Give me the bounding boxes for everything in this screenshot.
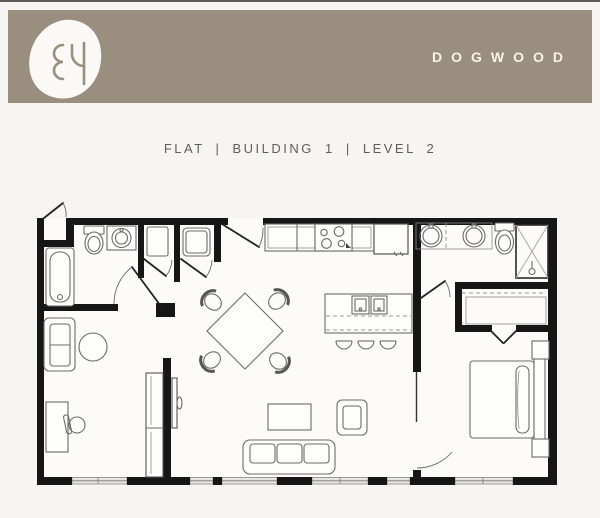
sofa	[243, 440, 335, 474]
water-heater	[147, 227, 168, 256]
floorplan	[0, 0, 600, 518]
nightstand	[532, 341, 549, 359]
nightstand	[532, 439, 549, 457]
kitchen-island	[325, 294, 412, 333]
bed	[470, 358, 545, 440]
desk	[46, 402, 68, 452]
wardrobe	[146, 373, 163, 477]
range	[315, 224, 352, 251]
bathroom-sink	[107, 226, 136, 250]
master-toilet	[495, 223, 514, 254]
round-side-table	[79, 333, 107, 361]
refrigerator	[374, 224, 408, 256]
coffee-table	[268, 404, 311, 430]
armchair	[337, 400, 367, 435]
coat-closet-door	[44, 203, 66, 218]
toilet-icon	[84, 226, 104, 254]
loveseat	[44, 318, 75, 371]
bathtub	[46, 248, 74, 306]
washer-dryer	[183, 228, 210, 256]
